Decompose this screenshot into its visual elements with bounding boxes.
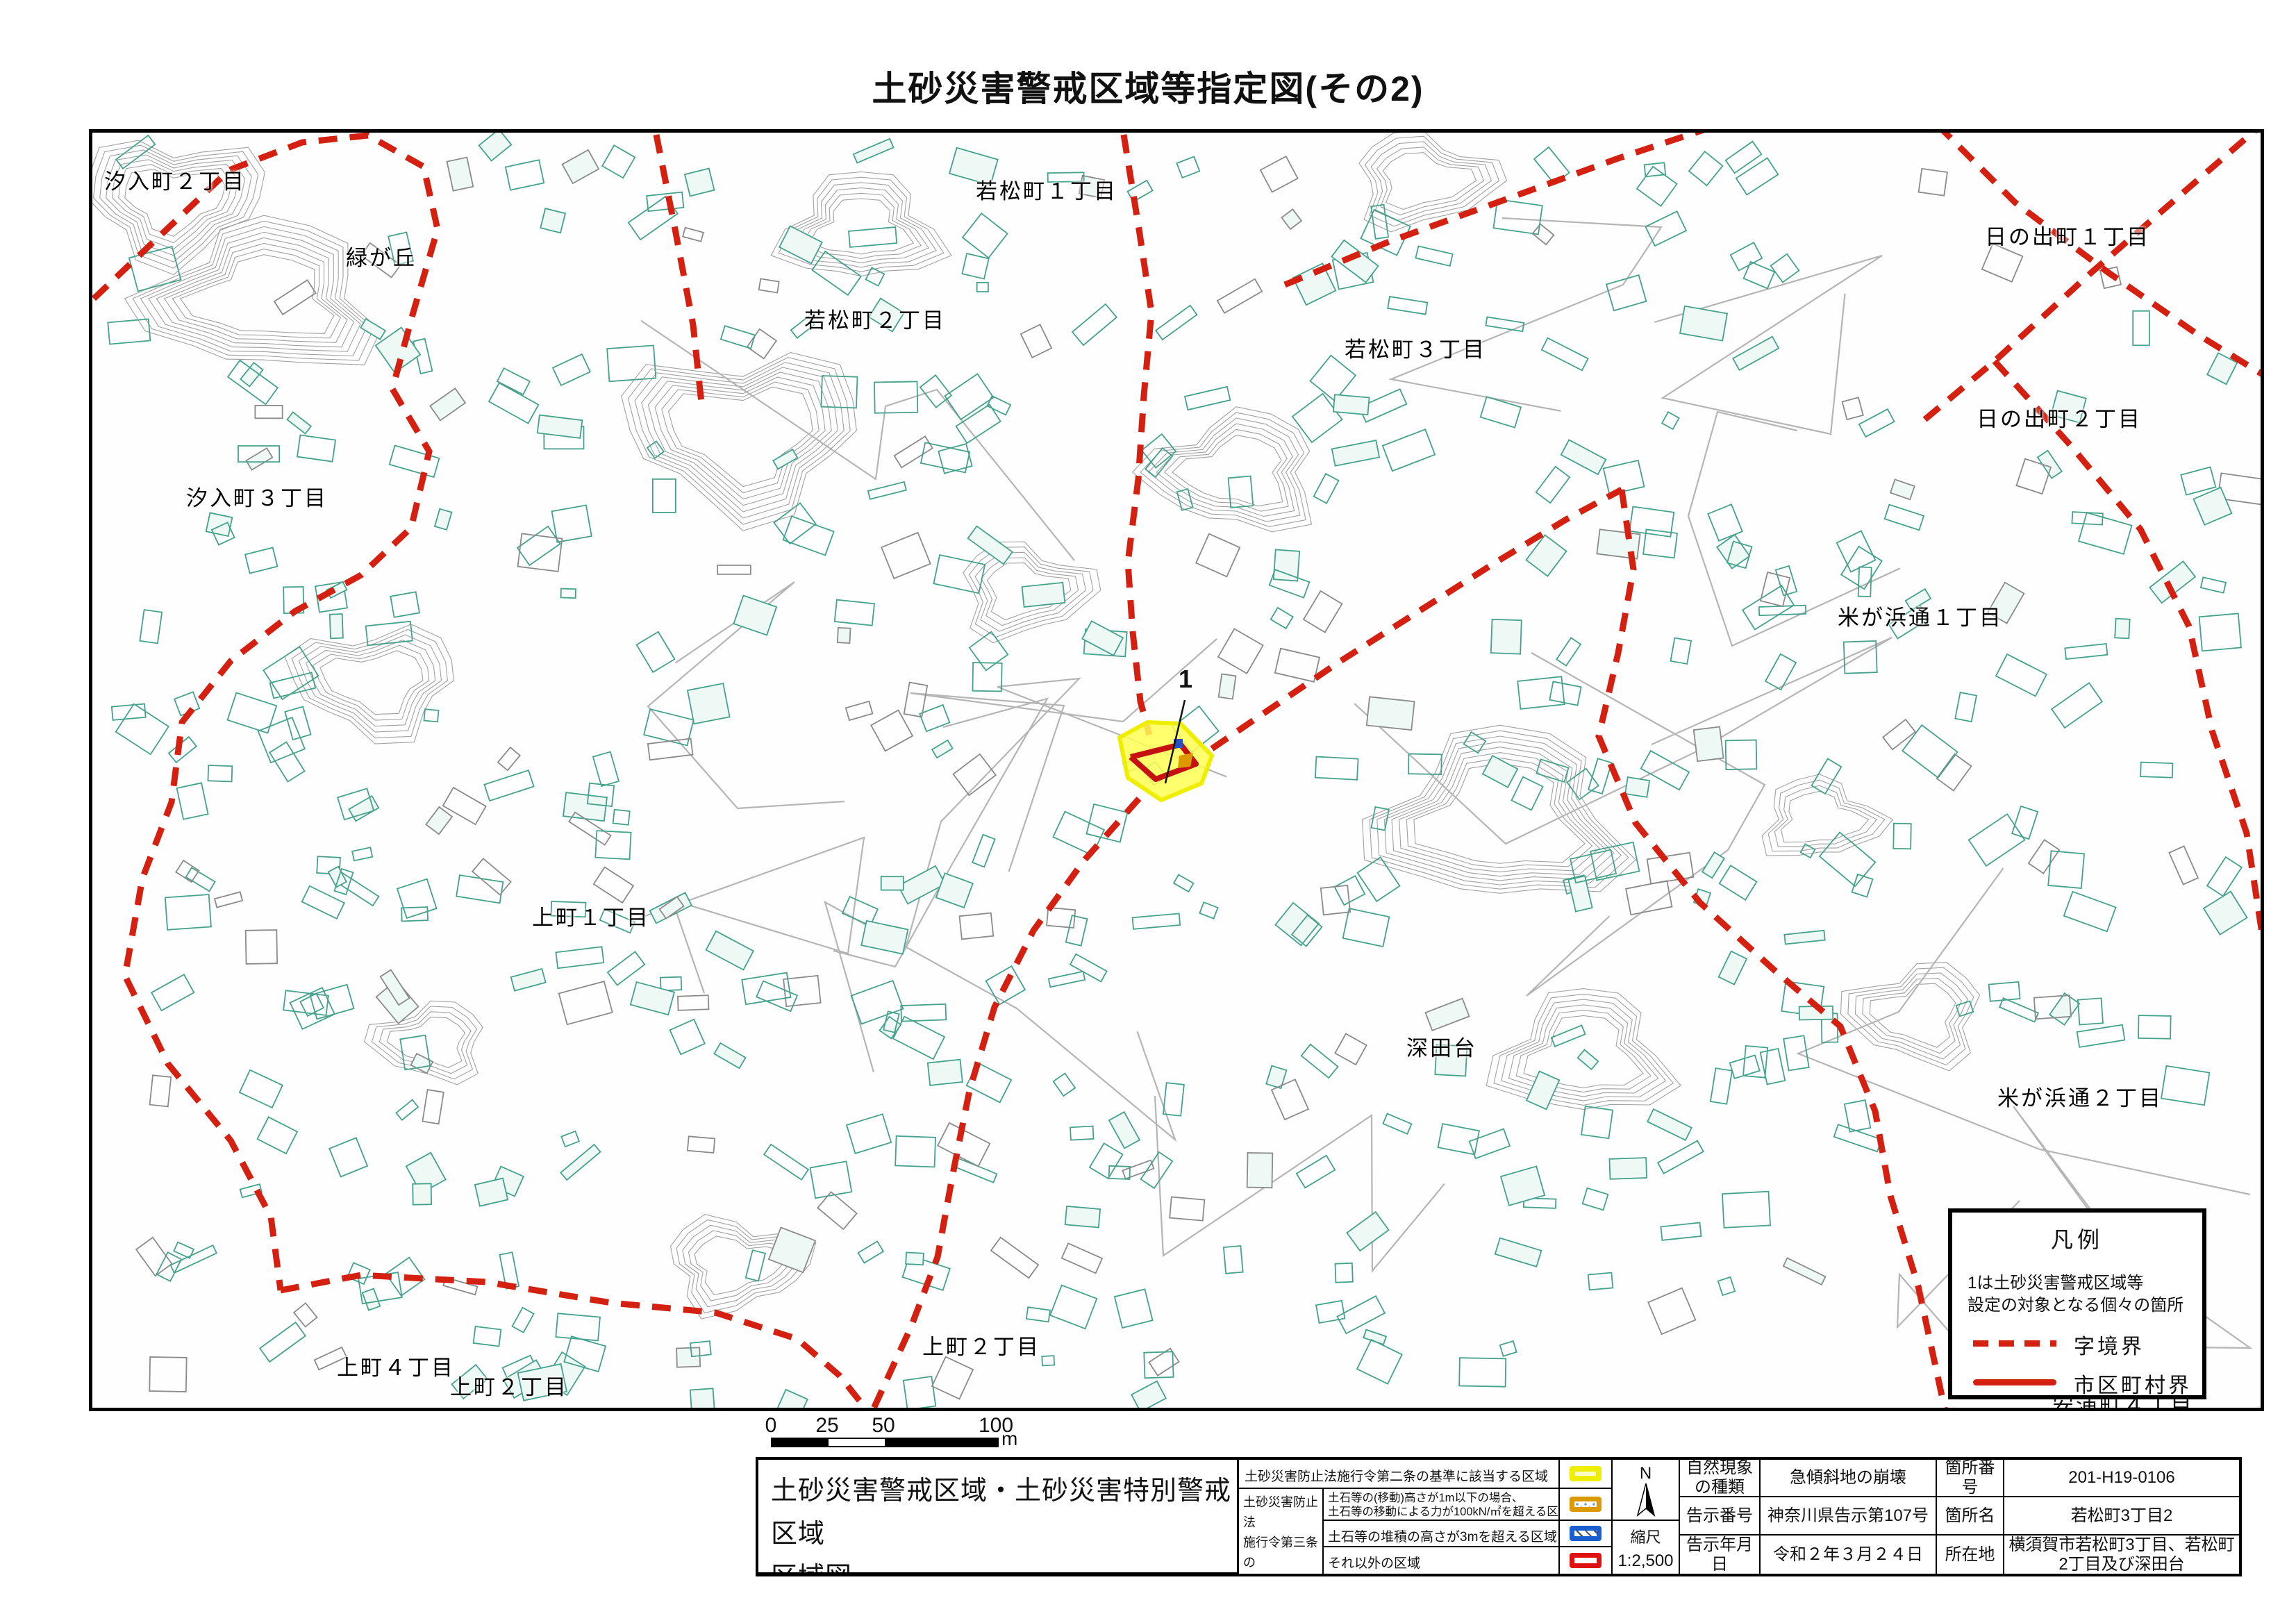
map-legend-box: 凡例 1は土砂災害警戒区域等 設定の対象となる個々の箇所 字境界 市区町村界 (1948, 1208, 2206, 1399)
map-sheet-title: 土砂災害警戒区域・土砂災害特別警戒区域 区域図 (758, 1460, 1239, 1574)
place-label: 若松町２丁目 (804, 303, 946, 334)
scale-cell: 縮尺 1:2,500 (1613, 1521, 1680, 1574)
map-sheet-title-line1: 土砂災害警戒区域・土砂災害特別警戒区域 (771, 1476, 1231, 1549)
row2-line1: 土石等の(移動)高さが1m以下の場合、 (1328, 1492, 1523, 1504)
legend-row-municipal-boundary: 市区町村界 (1973, 1370, 2202, 1395)
map-drawing (92, 133, 2261, 1408)
field-location-value: 横須賀市若松町3丁目、若松町 2丁目及び深田台 (2004, 1535, 2239, 1574)
compass-n-label: N (1613, 1464, 1679, 1483)
place-label: 汐入町３丁目 (186, 481, 328, 512)
scale-unit: m (1001, 1428, 1017, 1450)
field-site-number-label: 箇所番号 (1937, 1460, 2004, 1497)
group-line2: 施行令第三条の (1243, 1535, 1318, 1570)
legend-title: 凡例 (1952, 1222, 2202, 1254)
field-location-label: 所在地 (1937, 1535, 2004, 1574)
location-l2: 2丁目及び深田台 (2058, 1555, 2184, 1574)
field-site-name-value: 若松町3丁目2 (2004, 1497, 2239, 1535)
place-label: 上町４丁目 (337, 1350, 455, 1381)
field-notice-date-label: 告示年月日 (1680, 1535, 1761, 1574)
scale-value: 1:2,500 (1613, 1551, 1679, 1571)
page: { "page_title": "土砂災害警戒区域等指定図(その2)", "ma… (0, 0, 2296, 1623)
legend-dashed-label: 字境界 (2074, 1329, 2145, 1360)
scale-bar: 0 25 50 100 m (750, 1414, 1042, 1446)
legend-debris-move-text: 土石等の(移動)高さが1m以下の場合、 土石等の移動による力が100kN/㎡を超… (1324, 1489, 1560, 1521)
group-line1: 土砂災害防止法 (1243, 1495, 1318, 1529)
legend-row-aza-boundary: 字境界 (1973, 1331, 2202, 1356)
map-area: 1 安浦町４丁目 凡例 1は土砂災害警戒区域等 設定の対象となる個々の箇所 字境… (89, 129, 2264, 1411)
place-label: 日の出町２丁目 (1977, 401, 2142, 433)
field-notice-date-value: 令和２年３月２４日 (1761, 1535, 1937, 1574)
legend-note: 1は土砂災害警戒区域等 設定の対象となる個々の箇所 (1968, 1272, 2202, 1317)
scale-tick-25: 25 (815, 1414, 838, 1438)
legend-solid-label: 市区町村界 (2074, 1368, 2192, 1399)
place-label: 上町１丁目 (532, 900, 650, 931)
place-label: 上町２丁目 (450, 1370, 568, 1401)
scale-tick-50: 50 (872, 1414, 895, 1438)
north-arrow-icon (1636, 1483, 1656, 1517)
phenomenon-l2: の種類 (1695, 1478, 1745, 1497)
compass-cell: N (1613, 1460, 1680, 1521)
field-phenomenon-label: 自然現象 の種類 (1680, 1460, 1761, 1497)
field-notice-number-value: 神奈川県告示第107号 (1761, 1497, 1937, 1535)
place-label: 若松町１丁目 (976, 174, 1117, 205)
solid-line-icon (1973, 1379, 2056, 1385)
yellow-area-swatch-icon (1570, 1466, 1602, 1481)
place-label: 米が浜通２丁目 (1997, 1081, 2163, 1112)
scale-seg-black2 (885, 1439, 997, 1446)
row2-line2: 土石等の移動による力が100kN/㎡を超える区域 (1328, 1506, 1558, 1521)
scale-tick-0: 0 (765, 1414, 777, 1438)
page-title: 土砂災害警戒区域等指定図(その2) (0, 61, 2296, 111)
marker-1-label: 1 (1179, 665, 1192, 694)
field-notice-number-label: 告示番号 (1680, 1497, 1761, 1535)
swatch-cell-blue (1560, 1521, 1613, 1547)
swatch-cell-orange (1560, 1489, 1613, 1521)
field-phenomenon-value: 急傾斜地の崩壊 (1761, 1460, 1937, 1497)
orange-hatch-swatch-icon (1570, 1497, 1602, 1512)
legend-article3-group-label: 土砂災害防止法 施行令第三条の 基準に該当する 区域 (1239, 1489, 1324, 1574)
place-label: 上町２丁目 (922, 1329, 1040, 1360)
legend-other-area-text: それ以外の区域 (1324, 1547, 1560, 1574)
dashed-line-icon (1973, 1340, 2056, 1347)
info-table: 土砂災害警戒区域・土砂災害特別警戒区域 区域図 土砂災害防止法施行令第二条の基準… (756, 1457, 2242, 1576)
scale-bar-graphic (771, 1438, 999, 1447)
phenomenon-l1: 自然現象 (1686, 1460, 1753, 1477)
red-outline-swatch-icon (1570, 1553, 1602, 1568)
field-site-number-value: 201-H19-0106 (2004, 1460, 2239, 1497)
location-l1: 横須賀市若松町3丁目、若松町 (2008, 1535, 2234, 1554)
scale-label: 縮尺 (1613, 1525, 1679, 1547)
legend-note-line2: 設定の対象となる個々の箇所 (1968, 1296, 2183, 1315)
blue-hatch-swatch-icon (1570, 1526, 1602, 1541)
place-label: 緑が丘 (346, 240, 417, 272)
swatch-cell-red (1560, 1547, 1613, 1574)
place-label: 日の出町１丁目 (1985, 219, 2150, 251)
place-label: 米が浜通１丁目 (1838, 600, 2003, 631)
swatch-cell-yellow (1560, 1460, 1613, 1489)
scale-seg-white (829, 1439, 885, 1446)
legend-article2-text: 土砂災害防止法施行令第二条の基準に該当する区域 (1239, 1460, 1560, 1489)
place-label: 深田台 (1406, 1031, 1477, 1062)
place-label: 汐入町２丁目 (104, 164, 246, 195)
scale-seg-black (772, 1439, 829, 1446)
legend-debris-pile-text: 土石等の堆積の高さが3mを超える区域 (1324, 1521, 1560, 1547)
legend-note-line1: 1は土砂災害警戒区域等 (1968, 1274, 2143, 1292)
map-sheet-title-line2: 区域図 (771, 1563, 852, 1574)
field-site-name-label: 箇所名 (1937, 1497, 2004, 1535)
place-label: 若松町３丁目 (1345, 332, 1486, 363)
